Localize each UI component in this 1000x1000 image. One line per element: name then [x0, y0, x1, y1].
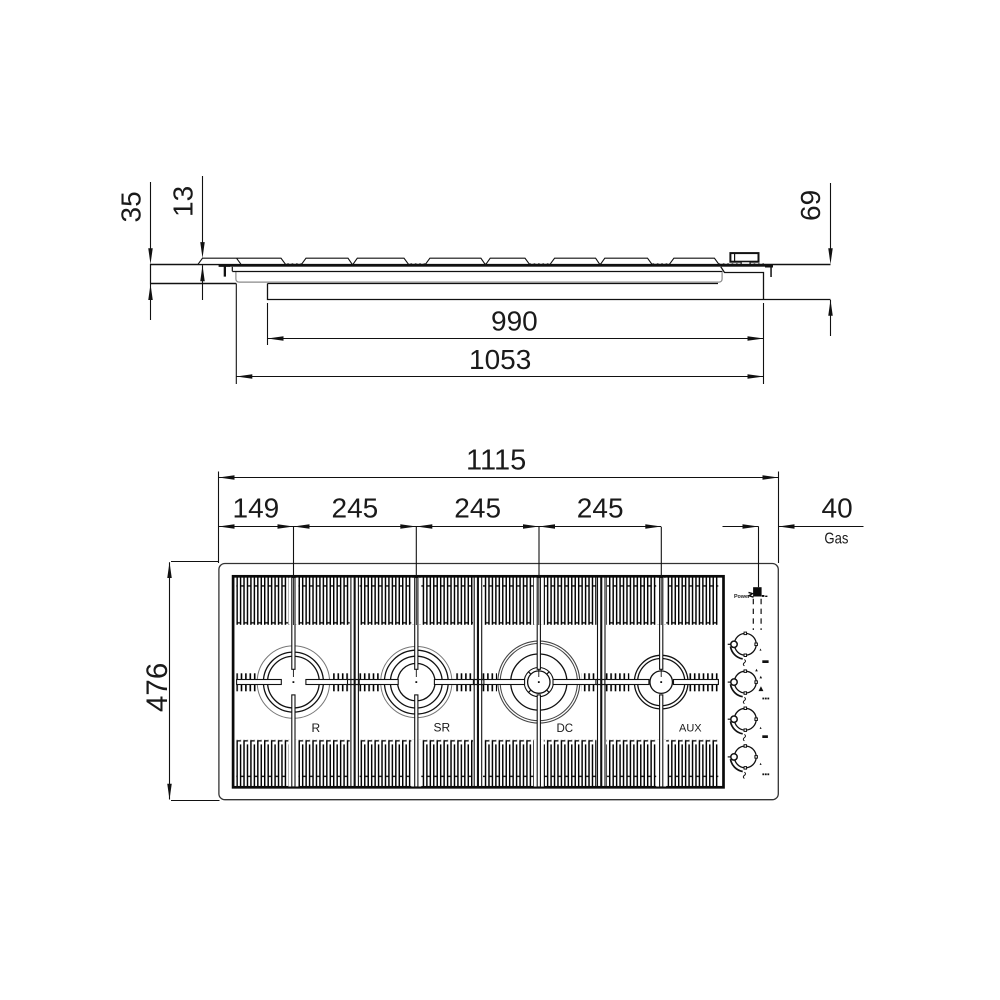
- svg-text:13: 13: [168, 186, 199, 217]
- svg-text:R: R: [312, 721, 321, 735]
- svg-text:245: 245: [454, 493, 501, 524]
- svg-text:35: 35: [116, 191, 147, 222]
- svg-text:40: 40: [822, 493, 853, 524]
- svg-text:245: 245: [332, 493, 379, 524]
- svg-text:Power: Power: [734, 594, 751, 600]
- svg-text:476: 476: [141, 663, 174, 712]
- svg-text:1053: 1053: [469, 344, 531, 375]
- svg-text:245: 245: [577, 493, 624, 524]
- svg-text:990: 990: [491, 306, 538, 337]
- svg-text:SR: SR: [434, 721, 451, 735]
- svg-text:149: 149: [233, 493, 280, 524]
- svg-text:AUX: AUX: [679, 722, 702, 734]
- svg-text:DC: DC: [557, 723, 574, 735]
- svg-text:69: 69: [795, 190, 826, 221]
- svg-text:1115: 1115: [466, 445, 526, 477]
- svg-text:Gas: Gas: [824, 531, 848, 548]
